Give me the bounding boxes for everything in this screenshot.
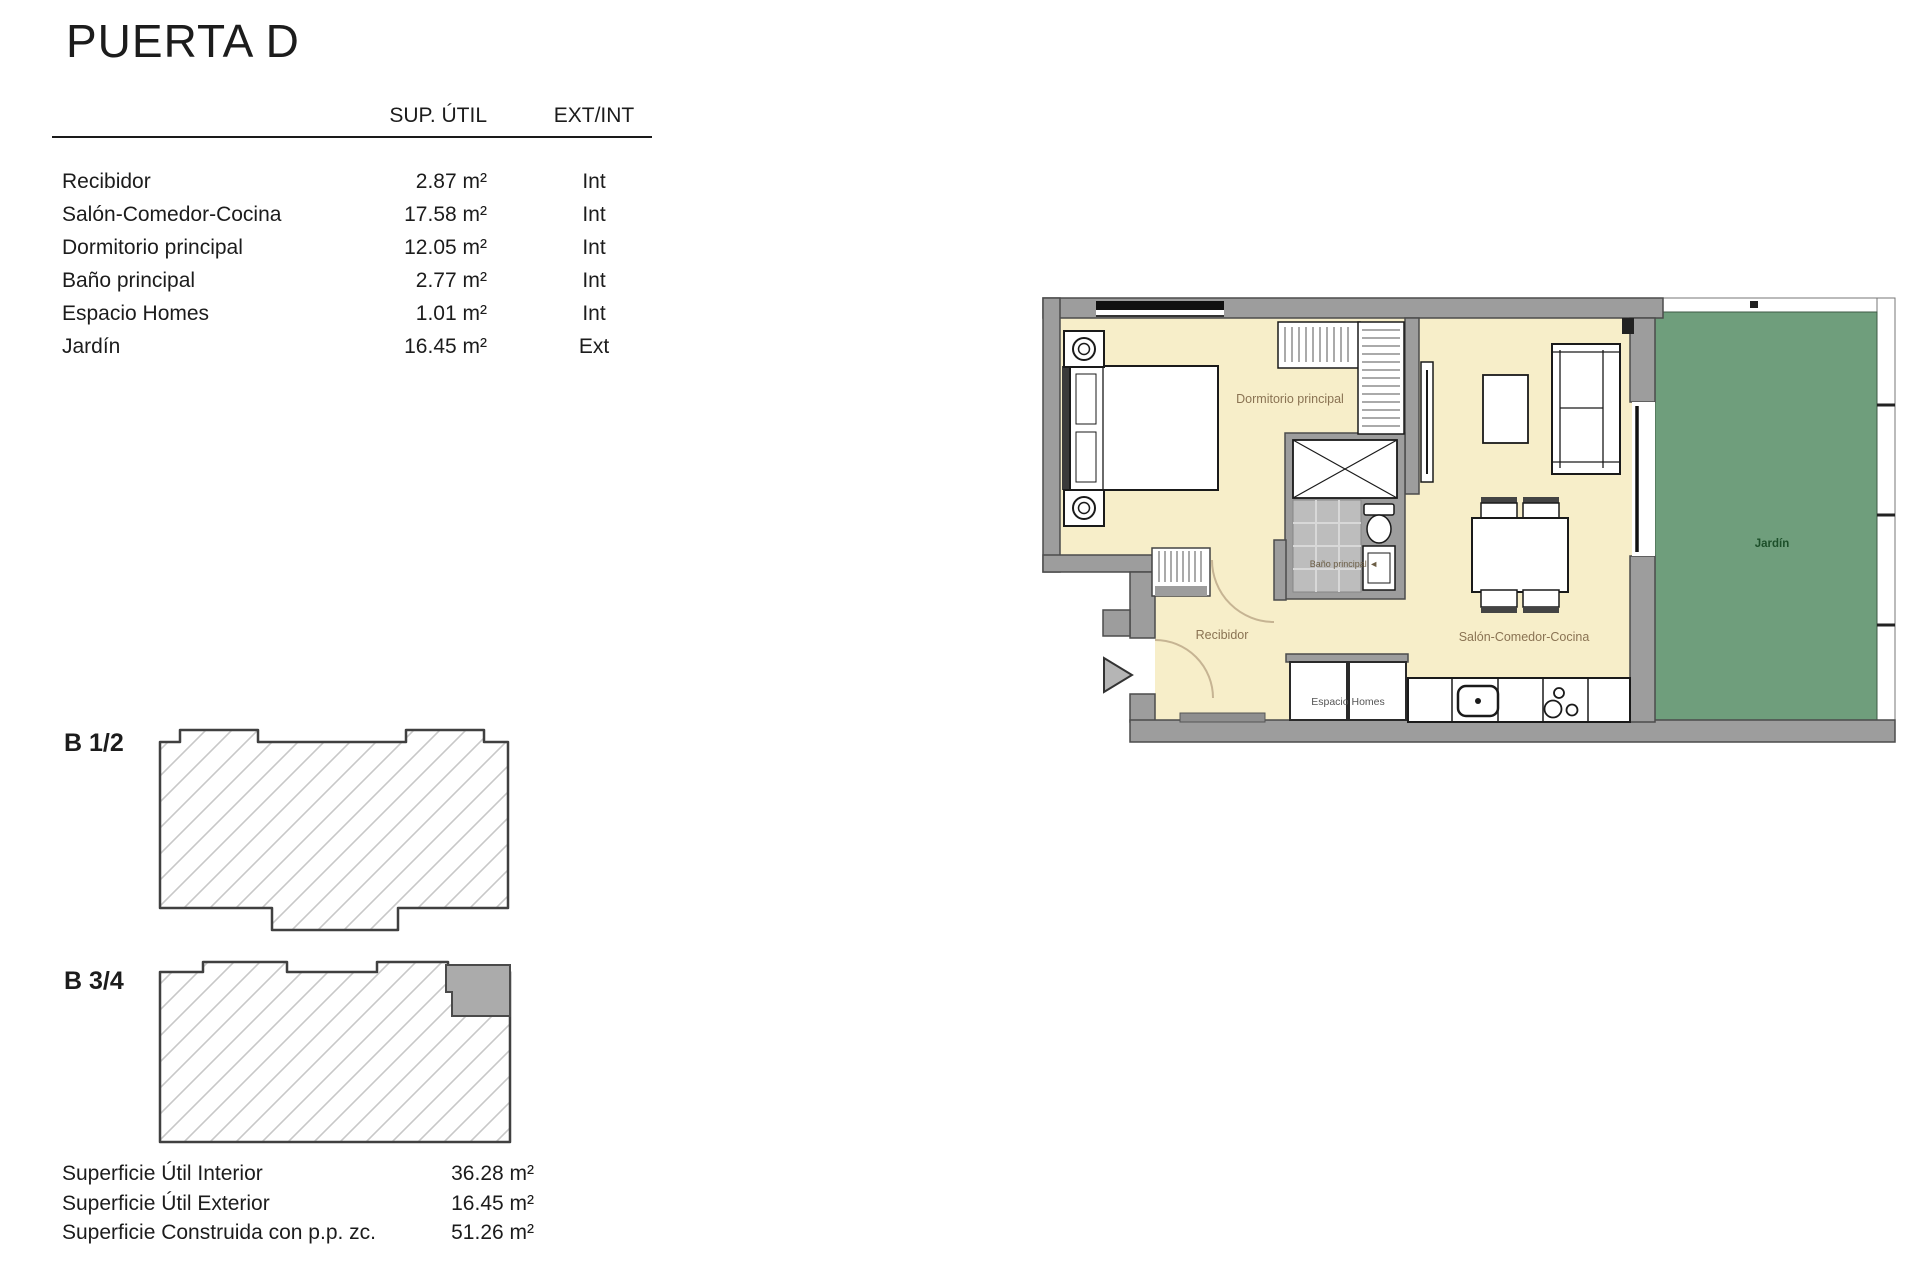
- coffee-table: [1483, 375, 1528, 443]
- summary-value: 16.45 m²: [312, 1192, 534, 1216]
- room-name: Salón-Comedor-Cocina: [62, 203, 281, 227]
- room-name: Recibidor: [62, 170, 151, 194]
- room-name: Espacio Homes: [62, 302, 209, 326]
- room-area: 12.05 m²: [287, 236, 487, 260]
- building-key-diagrams: [150, 722, 520, 1150]
- summary-label: Superficie Útil Interior: [62, 1162, 263, 1186]
- block-label-b34: B 3/4: [64, 967, 124, 996]
- hall-closet: [1152, 548, 1210, 596]
- bathroom-tiles: [1293, 500, 1361, 592]
- room-name: Baño principal: [62, 269, 195, 293]
- header-rule: [52, 136, 652, 138]
- bed: [1062, 366, 1218, 490]
- room-area: 16.45 m²: [287, 335, 487, 359]
- nightstand-lamp: [1064, 331, 1104, 367]
- room-type: Int: [530, 170, 658, 194]
- block-b12-outline: [160, 730, 508, 930]
- column-header-ext-int: EXT/INT: [530, 104, 658, 128]
- unit-location-marker: [446, 965, 510, 1016]
- room-label-dormitorio: Dormitorio principal: [1236, 392, 1344, 406]
- summary-value: 51.26 m²: [312, 1221, 534, 1245]
- page-title: PUERTA D: [66, 14, 300, 68]
- nightstand-lamp: [1064, 490, 1104, 526]
- room-label-recibidor: Recibidor: [1196, 628, 1249, 642]
- room-label-jardin: Jardín: [1755, 538, 1790, 550]
- summary-label: Superficie Útil Exterior: [62, 1192, 270, 1216]
- summary-row: Superficie Útil Interior 36.28 m²: [62, 1162, 542, 1192]
- area-table: Recibidor 2.87 m² Int Salón-Comedor-Coci…: [62, 170, 662, 368]
- surface-summary: Superficie Útil Interior 36.28 m² Superf…: [62, 1162, 542, 1251]
- room-type: Int: [530, 302, 658, 326]
- room-type: Int: [530, 236, 658, 260]
- floorplan-sheet: { "title": "PUERTA D", "table": { "col_a…: [0, 0, 1920, 1280]
- room-label-espacio: Espacio Homes: [1311, 696, 1385, 708]
- tv-unit: [1421, 362, 1433, 482]
- room-name: Dormitorio principal: [62, 236, 243, 260]
- room-label-salon: Salón-Comedor-Cocina: [1459, 630, 1590, 644]
- summary-row: Superficie Útil Exterior 16.45 m²: [62, 1192, 542, 1222]
- entrance-arrow-icon: [1104, 658, 1132, 692]
- room-area: 17.58 m²: [287, 203, 487, 227]
- doormat: [1180, 713, 1265, 722]
- block-label-b12: B 1/2: [64, 729, 124, 758]
- room-label-bano: Baño principal ◄: [1310, 559, 1378, 569]
- garden-area: [1655, 298, 1895, 722]
- room-type: Ext: [530, 335, 658, 359]
- table-row: Espacio Homes 1.01 m² Int: [62, 302, 662, 335]
- garden-lawn: [1655, 312, 1877, 720]
- shower: [1293, 440, 1397, 498]
- summary-value: 36.28 m²: [312, 1162, 534, 1186]
- bedroom-window: [1096, 301, 1224, 317]
- room-type: Int: [530, 269, 658, 293]
- room-area: 2.77 m²: [287, 269, 487, 293]
- room-area: 2.87 m²: [287, 170, 487, 194]
- door-frame-mark: [1622, 318, 1634, 334]
- toilet: [1364, 504, 1394, 543]
- table-row: Recibidor 2.87 m² Int: [62, 170, 662, 203]
- storage-units: [1290, 662, 1406, 720]
- table-row: Dormitorio principal 12.05 m² Int: [62, 236, 662, 269]
- summary-row: Superficie Construida con p.p. zc. 51.26…: [62, 1221, 542, 1251]
- table-row: Salón-Comedor-Cocina 17.58 m² Int: [62, 203, 662, 236]
- table-row: Jardín 16.45 m² Ext: [62, 335, 662, 368]
- area-table-header: SUP. ÚTIL EXT/INT: [62, 104, 662, 134]
- room-area: 1.01 m²: [287, 302, 487, 326]
- column-header-sup-util: SUP. ÚTIL: [287, 104, 487, 128]
- room-type: Int: [530, 203, 658, 227]
- sofa: [1552, 344, 1620, 474]
- table-row: Baño principal 2.77 m² Int: [62, 269, 662, 302]
- garden-sliding-door: [1632, 402, 1655, 556]
- kitchen-counter: [1408, 678, 1630, 722]
- floor-plan: Dormitorio principal Baño principal ◄ Re…: [1040, 290, 1920, 760]
- room-name: Jardín: [62, 335, 120, 359]
